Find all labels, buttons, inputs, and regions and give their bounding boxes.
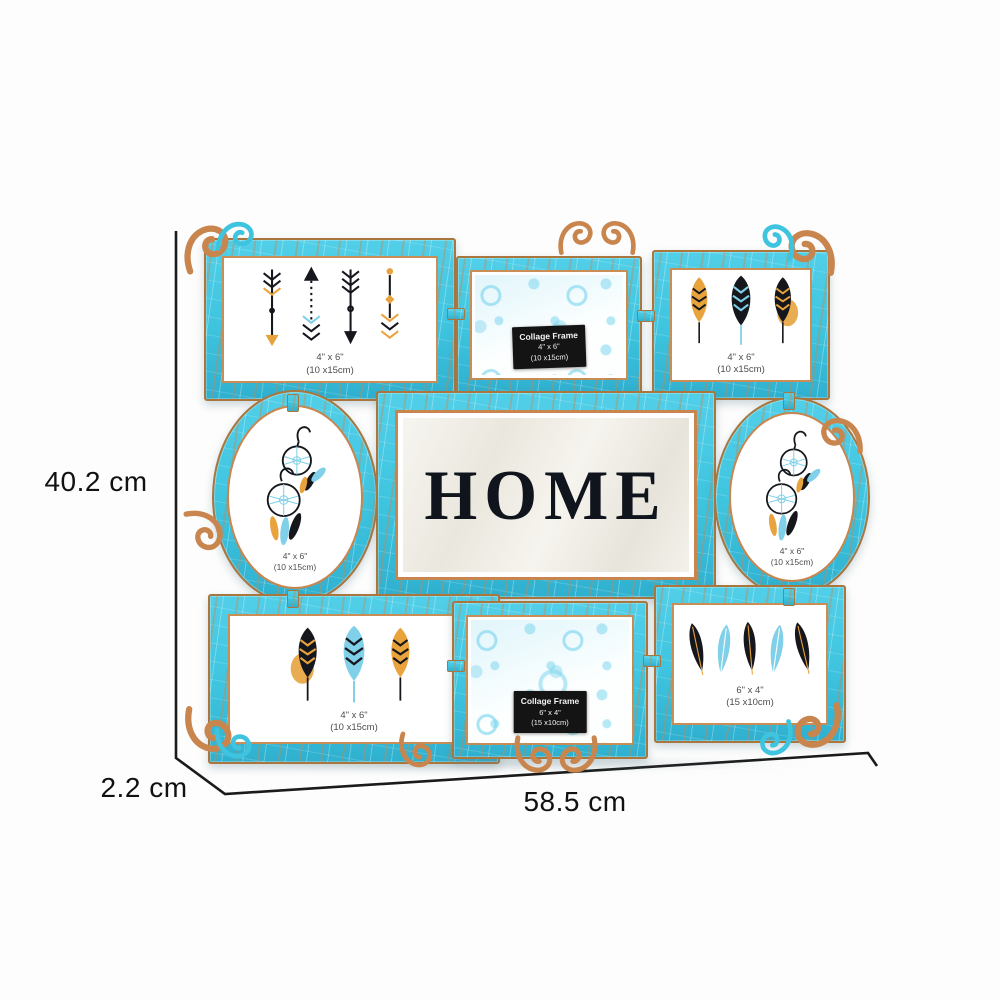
frame-slot-center-home: HOME: [376, 391, 716, 599]
frame-slot-top-left: 4" x 6" (10 x15cm): [204, 238, 456, 401]
frame-connector: [643, 655, 661, 667]
home-text: HOME: [424, 454, 667, 536]
photo-mat: 4" x 6" (10 x15cm): [729, 412, 855, 582]
frame-connector: [447, 308, 465, 320]
frame-slot-bottom-center: Collage Frame 6" x 4" (15 x10cm): [452, 601, 648, 759]
frame-slot-top-center: Collage Frame 4" x 6" (10 x15cm): [456, 256, 642, 394]
size-plate: Collage Frame 4" x 6" (10 x15cm): [512, 325, 586, 369]
photo-size-caption: 4" x 6" (10 x15cm): [330, 710, 378, 735]
paisley-print-insert: Collage Frame 6" x 4" (15 x10cm): [466, 615, 634, 745]
home-gold-trim: HOME: [395, 410, 697, 580]
frame-connector: [447, 660, 465, 672]
photo-mat: 4" x 6" (10 x15cm): [227, 405, 363, 589]
leaf-feathers-artwork: [280, 624, 428, 706]
width-dimension-label: 58.5 cm: [505, 786, 645, 818]
product-dimension-image: 40.2 cm 2.2 cm 58.5 cm: [0, 0, 1000, 1000]
five-feathers-artwork: [680, 619, 820, 681]
frame-connector: [287, 394, 299, 412]
photo-size-caption: 4" x 6" (10 x15cm): [306, 352, 354, 377]
leaf-feathers-artwork: [675, 274, 807, 348]
paisley-print-insert: Collage Frame 4" x 6" (10 x15cm): [470, 270, 628, 380]
photo-size-caption: 4" x 6" (10 x15cm): [274, 551, 317, 573]
tribal-arrows-artwork: [246, 262, 414, 348]
photo-mat: 4" x 6" (10 x15cm): [228, 614, 480, 744]
frame-slot-top-right: 4" x 6" (10 x15cm): [652, 250, 830, 400]
dreamcatcher-earrings-artwork: [750, 426, 834, 544]
frame-slot-middle-right: 4" x 6" (10 x15cm): [714, 397, 870, 597]
frame-slot-bottom-right: 6" x 4" (15 x10cm): [654, 585, 846, 743]
photo-mat: 4" x 6" (10 x15cm): [222, 256, 438, 383]
dreamcatcher-earrings-artwork: [249, 421, 341, 549]
frame-connector: [287, 590, 299, 608]
photo-size-caption: 4" x 6" (10 x15cm): [717, 352, 765, 377]
height-dimension-label: 40.2 cm: [30, 466, 162, 498]
frame-connector: [637, 310, 655, 322]
marble-panel: HOME: [403, 418, 689, 572]
frame-connector: [783, 392, 795, 410]
photo-mat: 4" x 6" (10 x15cm): [670, 268, 812, 382]
size-plate: Collage Frame 6" x 4" (15 x10cm): [514, 691, 587, 733]
frame-slot-middle-left: 4" x 6" (10 x15cm): [212, 390, 378, 604]
frame-connector: [783, 588, 795, 606]
photo-size-caption: 4" x 6" (10 x15cm): [771, 546, 814, 568]
depth-dimension-label: 2.2 cm: [96, 772, 192, 804]
photo-mat: 6" x 4" (15 x10cm): [672, 603, 828, 725]
photo-size-caption: 6" x 4" (15 x10cm): [726, 685, 774, 710]
